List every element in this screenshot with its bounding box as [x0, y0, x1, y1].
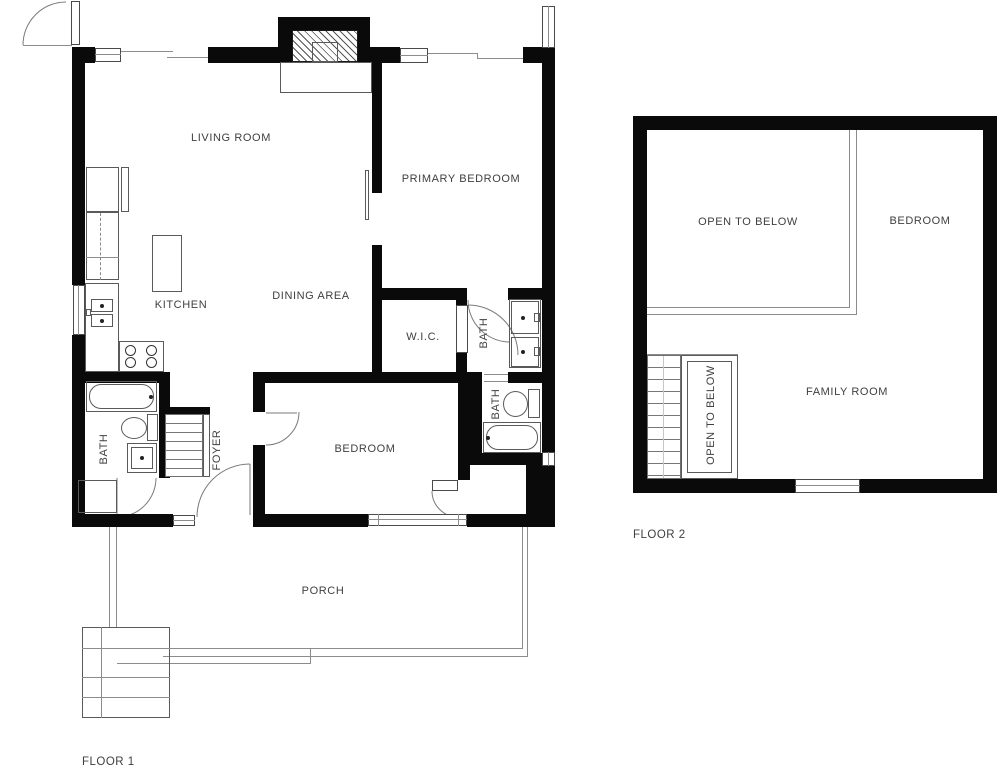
f2-wall-bottom-b — [860, 479, 997, 493]
porch-steps-h1 — [82, 648, 170, 649]
label-bath-upper: BATH — [478, 318, 490, 349]
burner-3 — [146, 345, 157, 356]
porch-bottom-b — [163, 656, 528, 657]
sink-dot-b — [100, 319, 104, 323]
doorway-line-a — [484, 374, 508, 375]
label-kitchen: KITCHEN — [155, 299, 207, 311]
slider-primary-a — [428, 53, 478, 54]
label-floor2: FLOOR 2 — [633, 529, 686, 541]
wall-bottom-a — [72, 514, 173, 527]
fridge-panel — [121, 167, 129, 212]
porch-right-b — [527, 527, 528, 656]
stairs-f1 — [165, 414, 203, 477]
f2-wall-top — [633, 116, 997, 130]
window-bottom-bedroom — [368, 514, 467, 526]
stairs-f1-railing — [203, 414, 210, 477]
wall-top-c — [370, 47, 400, 63]
cabinet — [86, 212, 119, 280]
stairs-f2 — [647, 355, 681, 479]
wall-bedroom-right — [458, 383, 470, 480]
bath-left-door-arc — [117, 478, 156, 517]
burner-1 — [125, 345, 136, 356]
sink-left-dot — [140, 456, 144, 460]
porch-steps-h2 — [82, 677, 170, 678]
vanity-dot-b — [521, 350, 525, 354]
window-right-small-line — [548, 452, 549, 466]
counter — [85, 283, 119, 372]
f2-window — [795, 479, 860, 493]
window-top-left — [95, 48, 121, 62]
window-bottom-div-a — [378, 514, 379, 526]
cabinet-dash — [100, 213, 101, 280]
front-door-sidelight-line — [173, 520, 195, 521]
label-open-to-below: OPEN TO BELOW — [698, 216, 798, 228]
porch-right-a — [522, 527, 523, 648]
wall-bedroom-left-a — [253, 383, 265, 412]
label-bath-lower: BATH — [490, 389, 502, 420]
label-porch: PORCH — [302, 585, 345, 597]
wall-top-a — [72, 47, 95, 63]
burner-4 — [146, 357, 157, 368]
slider-living-a — [121, 51, 173, 52]
floor-plan: LIVING ROOM PRIMARY BEDROOM KITCHEN DINI… — [0, 0, 1000, 772]
island — [152, 235, 182, 292]
label-floor1: FLOOR 1 — [82, 756, 135, 768]
wall-right-upper — [542, 47, 555, 452]
wall-left-upper — [72, 47, 85, 285]
fridge — [86, 167, 119, 212]
f2-rail-h-b — [647, 314, 857, 315]
entry-door-leaf — [71, 1, 80, 45]
pocket-door-leaf — [365, 170, 369, 220]
slider-primary-joint — [477, 53, 478, 59]
sink-dot-a — [100, 304, 104, 308]
porch-steps — [82, 627, 170, 718]
wall-bath-lower-left — [470, 383, 482, 453]
f2-rail-v-a — [849, 130, 850, 307]
porch-bottom-a — [170, 648, 523, 649]
window-right-top-line — [548, 6, 549, 48]
bedroom-bath-door-leaf — [432, 480, 458, 491]
wall-top-b — [208, 47, 278, 63]
wall-mid-a — [253, 372, 482, 383]
window-bottom-div-b — [458, 514, 459, 526]
label-living-room: LIVING ROOM — [191, 132, 271, 144]
burner-2 — [125, 357, 136, 368]
foyer-cabinet — [78, 480, 117, 513]
tub-left-faucet — [149, 395, 153, 399]
toilet-bowl-left — [121, 417, 147, 439]
vanity-dot-a — [521, 316, 525, 320]
wall-under-tub — [470, 453, 542, 465]
toilet-tank-right — [528, 389, 540, 418]
entry-door-arc — [23, 2, 66, 45]
label-dining-area: DINING AREA — [272, 290, 350, 302]
label-bedroom-f2: BEDROOM — [889, 215, 950, 227]
slider-primary-b — [477, 58, 523, 59]
window-bottom-bedroom-line — [368, 519, 467, 520]
porch-left-a — [109, 527, 110, 627]
label-family-room: FAMILY ROOM — [806, 386, 888, 398]
porch-steps-v — [101, 627, 102, 718]
wall-mid-b — [508, 372, 542, 383]
vanity-faucet-b — [534, 347, 540, 356]
label-bath-left: BATH — [98, 434, 110, 465]
vanity-faucet-a — [534, 313, 540, 322]
tub-right-inner — [486, 425, 538, 450]
doorway-line-b — [484, 381, 508, 382]
label-bedroom-f1: BEDROOM — [334, 443, 395, 455]
wall-bedroom-left-b — [253, 445, 265, 514]
f2-wall-bottom-a — [633, 479, 795, 493]
window-top-primary-line — [400, 55, 428, 56]
label-wic: W.I.C. — [406, 331, 440, 343]
f2-rail-h-a — [647, 307, 850, 308]
wall-corner-block — [526, 465, 555, 514]
fireplace-inner — [312, 42, 338, 62]
wall-divider-upper — [372, 63, 382, 193]
wic-door-leaf — [456, 305, 468, 353]
f2-wall-left — [633, 116, 647, 493]
slider-living-b — [167, 57, 208, 58]
bedroom-door-arc — [266, 412, 299, 445]
toilet-bowl-right — [503, 391, 528, 417]
wall-divider-lower — [372, 245, 382, 372]
label-foyer: FOYER — [211, 430, 223, 471]
label-primary-bedroom: PRIMARY BEDROOM — [402, 173, 521, 185]
wall-wic-right-a — [456, 288, 467, 305]
wall-stair-stub — [164, 407, 210, 414]
wall-wic-right-b — [456, 353, 467, 372]
hearth — [280, 62, 372, 93]
tub-left-inner — [89, 384, 154, 409]
porch-steps-h3 — [82, 697, 170, 698]
entry-threshold — [23, 45, 72, 46]
cabinet-divider — [86, 257, 119, 258]
sink-faucet — [86, 309, 91, 316]
window-top-left-line — [95, 54, 121, 55]
f2-window-line — [795, 485, 860, 486]
wall-wic-top — [382, 288, 456, 300]
wall-bottom-c — [467, 514, 555, 527]
porch-jog — [310, 648, 311, 664]
porch-left-b — [116, 527, 117, 627]
tub-right-faucet — [486, 436, 490, 440]
window-left-kitchen-line — [78, 285, 79, 335]
f2-stairwell-inner — [687, 361, 732, 473]
window-left-kitchen — [73, 285, 85, 335]
f2-rail-v-b — [856, 130, 857, 314]
toilet-tank-left — [147, 414, 158, 441]
stairs-f2-centerline — [663, 356, 664, 478]
f2-wall-right — [983, 116, 997, 493]
wall-bottom-b — [253, 514, 368, 527]
